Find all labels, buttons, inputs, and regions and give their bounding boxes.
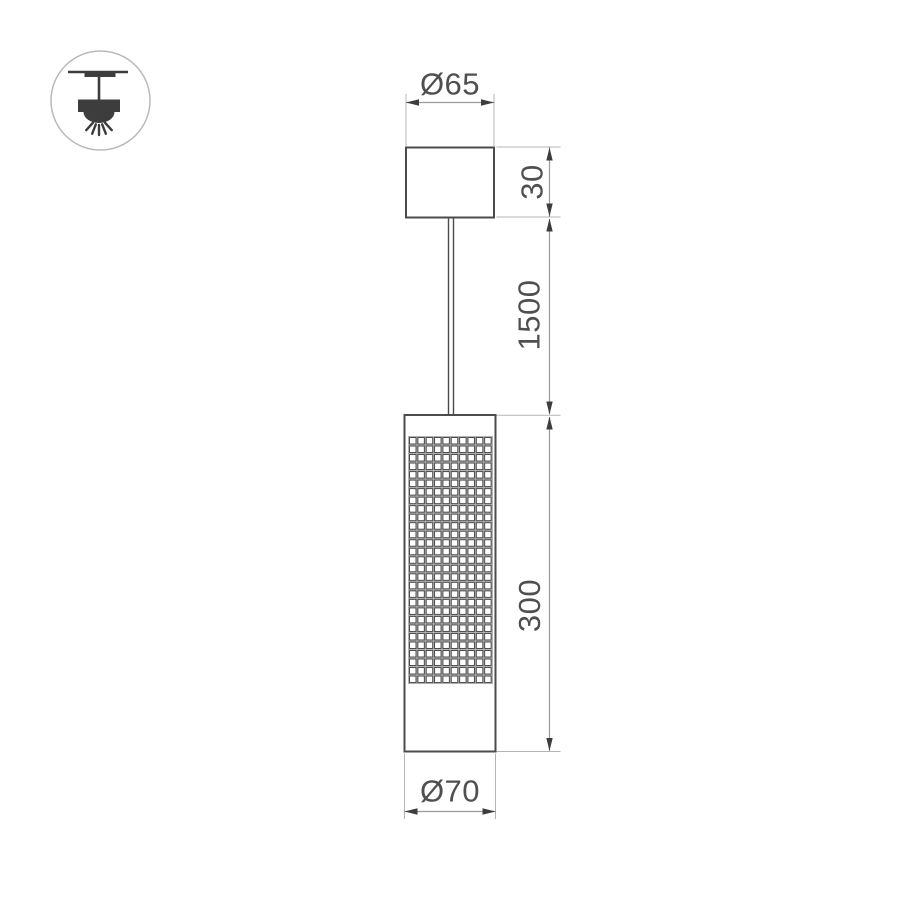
perforation-cell <box>451 506 458 513</box>
perforation-cell <box>443 557 450 564</box>
canopy-outline <box>406 148 494 218</box>
perforation-cell <box>418 668 425 675</box>
perforation-cell <box>468 455 475 462</box>
perforation-cell <box>468 591 475 598</box>
perforation-cell <box>460 497 467 504</box>
perforation-cell <box>426 616 433 623</box>
perforation-cell <box>410 548 417 555</box>
perforation-cell <box>418 616 425 623</box>
perforation-cell <box>426 506 433 513</box>
perforation-cell <box>426 438 433 445</box>
perforation-cell <box>485 582 492 589</box>
perforation-cell <box>460 523 467 530</box>
perforation-cell <box>476 676 483 683</box>
perforation-cell <box>435 531 442 538</box>
perforation-cell <box>485 574 492 581</box>
perforation-cell <box>485 633 492 640</box>
perforation-cell <box>426 625 433 632</box>
perforation-cell <box>460 463 467 470</box>
perforation-cell <box>460 651 467 658</box>
perforation-cell <box>451 548 458 555</box>
perforation-cell <box>435 625 442 632</box>
perforation-cell <box>476 540 483 547</box>
perforation-cell <box>468 472 475 479</box>
perforation-cell <box>451 523 458 530</box>
arrow-up <box>546 417 552 430</box>
dim-label-canopy-height: 30 <box>515 164 550 199</box>
perforation-cell <box>435 506 442 513</box>
perforation-cell <box>468 463 475 470</box>
perforation-cell <box>418 574 425 581</box>
perforation-cell <box>451 633 458 640</box>
perforation-cell <box>418 514 425 521</box>
perforation-cell <box>451 480 458 487</box>
perforation-cell <box>485 497 492 504</box>
perforation-cell <box>460 591 467 598</box>
perforation-cell <box>418 438 425 445</box>
perforation-cell <box>435 616 442 623</box>
perforation-cell <box>451 625 458 632</box>
drawing-canvas: Ø65 30 1500 300 <box>0 0 900 900</box>
perforation-cell <box>468 582 475 589</box>
perforation-cell <box>476 574 483 581</box>
perforation-cell <box>468 625 475 632</box>
perforation-cell <box>410 463 417 470</box>
perforation-cell <box>451 497 458 504</box>
perforation-cell <box>443 514 450 521</box>
perforation-cell <box>443 480 450 487</box>
perforation-cell <box>418 506 425 513</box>
dimension-drawing-svg: Ø65 30 1500 300 <box>0 0 900 900</box>
perforation-cell <box>426 659 433 666</box>
perforation-cell <box>476 455 483 462</box>
perforation-cell <box>468 599 475 606</box>
dim-body-diameter: Ø70 <box>405 754 496 820</box>
perforation-cell <box>418 659 425 666</box>
perforation-cell <box>476 463 483 470</box>
perforation-cell <box>410 557 417 564</box>
perforation-cell <box>476 591 483 598</box>
perforation-cell <box>435 497 442 504</box>
perforation-cell <box>435 651 442 658</box>
perforation-cell <box>410 446 417 453</box>
perforation-cell <box>443 616 450 623</box>
perforation-cell <box>460 438 467 445</box>
perforation-cell <box>476 514 483 521</box>
perforation-cell <box>410 438 417 445</box>
perforation-cell <box>443 651 450 658</box>
perforation-cell <box>426 497 433 504</box>
perforation-cell <box>485 540 492 547</box>
perforation-cell <box>468 642 475 649</box>
perforation-cell <box>418 540 425 547</box>
perforation-cell <box>460 506 467 513</box>
perforation-cell <box>410 514 417 521</box>
perforation-cell <box>418 676 425 683</box>
perforation-cell <box>476 659 483 666</box>
perforation-cell <box>410 540 417 547</box>
perforation-cell <box>468 531 475 538</box>
perforation-cell <box>468 438 475 445</box>
dim-canopy-diameter: Ø65 <box>406 67 494 147</box>
arrow-left <box>406 99 419 105</box>
perforation-cell <box>418 565 425 572</box>
perforation-cell <box>426 574 433 581</box>
perforation-cell <box>485 668 492 675</box>
perforation-cell <box>418 497 425 504</box>
perforation-cell <box>476 651 483 658</box>
perforation-cell <box>410 608 417 615</box>
perforation-cell <box>460 608 467 615</box>
perforation-cell <box>460 565 467 572</box>
perforation-cell <box>476 633 483 640</box>
perforation-cell <box>485 608 492 615</box>
perforation-cell <box>468 489 475 496</box>
perforation-cell <box>418 557 425 564</box>
perforation-cell <box>485 625 492 632</box>
perforation-cell <box>418 651 425 658</box>
perforation-cell <box>476 497 483 504</box>
perforation-cell <box>460 668 467 675</box>
perforation-cell <box>426 455 433 462</box>
perforation-cell <box>460 455 467 462</box>
perforation-cell <box>410 480 417 487</box>
arrow-right <box>483 808 496 814</box>
perforation-cell <box>443 548 450 555</box>
icon-lamp-body <box>78 100 120 113</box>
perforation-cell <box>410 599 417 606</box>
perforation-cell <box>418 531 425 538</box>
perforation-cell <box>460 616 467 623</box>
perforation-cell <box>426 608 433 615</box>
arrow-down <box>546 402 552 415</box>
perforation-cell <box>410 668 417 675</box>
perforation-cell <box>443 531 450 538</box>
perforation-cell <box>418 608 425 615</box>
perforation-cell <box>435 574 442 581</box>
perforation-cell <box>451 463 458 470</box>
perforation-cell <box>410 582 417 589</box>
perforation-cell <box>443 608 450 615</box>
perforation-cell <box>468 651 475 658</box>
perforation-cell <box>460 540 467 547</box>
perforation-cell <box>443 659 450 666</box>
perforation-cell <box>468 633 475 640</box>
perforation-cell <box>435 472 442 479</box>
perforation-cell <box>485 676 492 683</box>
perforation-cell <box>468 480 475 487</box>
perforation-cell <box>451 455 458 462</box>
perforation-cell <box>460 633 467 640</box>
perforation-cell <box>485 565 492 572</box>
perforation-cell <box>485 659 492 666</box>
perforation-cell <box>435 514 442 521</box>
perforation-cell <box>476 506 483 513</box>
perforation-cell <box>435 668 442 675</box>
perforation-cell <box>435 599 442 606</box>
perforation-cell <box>485 446 492 453</box>
perforation-cell <box>451 659 458 666</box>
perforation-cell <box>418 455 425 462</box>
perforation-cell <box>426 548 433 555</box>
perforation-cell <box>435 446 442 453</box>
perforation-cell <box>418 625 425 632</box>
perforation-cell <box>476 472 483 479</box>
perforation-cell <box>451 608 458 615</box>
arrow-right <box>481 99 494 105</box>
perforation-cell <box>435 642 442 649</box>
perforation-cell <box>435 540 442 547</box>
dim-label-canopy-diameter: Ø65 <box>420 67 480 102</box>
dim-label-suspension-length: 1500 <box>512 280 547 351</box>
perforation-cell <box>443 633 450 640</box>
perforation-cell <box>426 472 433 479</box>
perforation-cell <box>443 591 450 598</box>
perforation-cell <box>451 514 458 521</box>
perforation-cell <box>443 438 450 445</box>
perforation-cell <box>435 548 442 555</box>
perforation-cell <box>443 676 450 683</box>
perforation-cell <box>410 591 417 598</box>
perforation-cell <box>460 472 467 479</box>
perforation-cell <box>443 599 450 606</box>
perforation-cell <box>443 455 450 462</box>
perforation-cell <box>468 497 475 504</box>
perforation-cell <box>418 480 425 487</box>
arrow-up <box>546 148 552 161</box>
perforation-cell <box>468 574 475 581</box>
perforation-cell <box>485 531 492 538</box>
perforation-cell <box>468 540 475 547</box>
perforation-cell <box>443 472 450 479</box>
perforation-cell <box>418 472 425 479</box>
perforation-cell <box>418 463 425 470</box>
perforation-cell <box>468 514 475 521</box>
perforation-cell <box>418 446 425 453</box>
perforation-cell <box>435 633 442 640</box>
perforation-cell <box>460 548 467 555</box>
perforation-cell <box>451 676 458 683</box>
perforation-cell <box>443 540 450 547</box>
perforation-cell <box>485 642 492 649</box>
perforation-cell <box>435 455 442 462</box>
perforation-cell <box>485 489 492 496</box>
perforation-cell <box>410 616 417 623</box>
perforation-cell <box>426 480 433 487</box>
perforation-cell <box>485 557 492 564</box>
perforation-cell <box>435 582 442 589</box>
perforation-cell <box>468 668 475 675</box>
perforation-cell <box>426 599 433 606</box>
perforation-cell <box>451 668 458 675</box>
dim-canopy-height: 30 <box>497 147 561 217</box>
perforation-cell <box>410 633 417 640</box>
perforation-cell <box>443 463 450 470</box>
perforation-cell <box>468 557 475 564</box>
perforation-cell <box>451 591 458 598</box>
perforation-cell <box>460 446 467 453</box>
perforation-cell <box>468 676 475 683</box>
perforation-cell <box>426 565 433 572</box>
perforation-cell <box>485 472 492 479</box>
perforation-cell <box>476 668 483 675</box>
perforation-cell <box>451 446 458 453</box>
perforation-cell <box>485 548 492 555</box>
arrow-up <box>546 219 552 232</box>
perforation-cell <box>460 582 467 589</box>
perforation-cell <box>476 438 483 445</box>
perforation-cell <box>451 472 458 479</box>
perforation-cell <box>451 616 458 623</box>
perforation-cell <box>476 557 483 564</box>
perforation-cell <box>410 523 417 530</box>
perforation-cell <box>451 565 458 572</box>
perforation-cell <box>435 523 442 530</box>
perforation-cell <box>418 489 425 496</box>
perforation-cell <box>410 565 417 572</box>
perforation-cell <box>443 523 450 530</box>
perforation-cell <box>460 659 467 666</box>
perforation-cell <box>418 642 425 649</box>
perforation-cell <box>426 463 433 470</box>
perforation-cell <box>476 608 483 615</box>
perforation-cell <box>460 514 467 521</box>
perforation-cell <box>410 651 417 658</box>
perforation-cell <box>468 548 475 555</box>
perforation-cell <box>460 574 467 581</box>
perforation-cell <box>451 651 458 658</box>
perforation-cell <box>435 463 442 470</box>
perforation-cell <box>460 489 467 496</box>
perforation-cell <box>418 548 425 555</box>
perforation-cell <box>476 531 483 538</box>
perforation-cell <box>410 642 417 649</box>
perforation-cell <box>418 582 425 589</box>
perforation-cell <box>476 616 483 623</box>
perforation-cell <box>443 625 450 632</box>
perforation-cell <box>410 472 417 479</box>
perforation-cell <box>435 438 442 445</box>
perforation-cell <box>418 591 425 598</box>
perforation-cell <box>485 651 492 658</box>
perforation-cell <box>426 523 433 530</box>
perforation-cell <box>476 625 483 632</box>
dim-label-body-diameter: Ø70 <box>420 774 480 809</box>
perforation-cell <box>443 506 450 513</box>
perforation-cell <box>418 599 425 606</box>
arrow-left <box>405 808 418 814</box>
perforation-cell <box>410 497 417 504</box>
perforation-cell <box>443 582 450 589</box>
perforation-cell <box>435 565 442 572</box>
dim-body-height: 300 <box>497 415 561 751</box>
perforation-cell <box>460 531 467 538</box>
perforation-cell <box>468 565 475 572</box>
icon-mount-plate <box>85 73 116 78</box>
perforation-cell <box>426 676 433 683</box>
perforation-cell <box>426 446 433 453</box>
perforation-cell <box>410 455 417 462</box>
perforation-cell <box>451 438 458 445</box>
perforation-cell <box>435 557 442 564</box>
perforation-cell <box>468 659 475 666</box>
perforation-cell <box>435 489 442 496</box>
arrow-down <box>546 738 552 751</box>
perforation-cell <box>426 557 433 564</box>
perforation-cell <box>468 523 475 530</box>
ceiling-mount-icon <box>51 51 150 150</box>
perforation-cell <box>410 625 417 632</box>
perforation-cell <box>410 506 417 513</box>
perforation-cell <box>435 480 442 487</box>
perforation-cell <box>451 540 458 547</box>
perforation-cell <box>468 616 475 623</box>
perforation-cell <box>460 676 467 683</box>
perforation-cell <box>426 540 433 547</box>
perforation-cell <box>460 599 467 606</box>
perforation-cell <box>410 489 417 496</box>
perforation-cell <box>460 642 467 649</box>
perforation-cell <box>476 642 483 649</box>
perforation-cell <box>435 591 442 598</box>
perforation-cell <box>476 599 483 606</box>
perforation-cell <box>476 548 483 555</box>
perforation-cell <box>418 523 425 530</box>
perforation-cell <box>410 676 417 683</box>
perforation-cell <box>443 446 450 453</box>
perforation-cell <box>435 676 442 683</box>
perforation-cell <box>426 668 433 675</box>
perforation-cell <box>460 625 467 632</box>
perforation-cell <box>435 608 442 615</box>
perforation-cell <box>443 565 450 572</box>
perforation-cell <box>451 599 458 606</box>
perforation-cell <box>485 455 492 462</box>
perforation-cell <box>476 523 483 530</box>
perforation-cell <box>476 489 483 496</box>
arrow-down <box>546 204 552 217</box>
perforation-cell <box>451 489 458 496</box>
perforation-cell <box>460 557 467 564</box>
perforation-cell <box>451 642 458 649</box>
perforation-cell <box>426 531 433 538</box>
perforation-cell <box>460 480 467 487</box>
perforation-cell <box>410 659 417 666</box>
perforation-cell <box>485 463 492 470</box>
perforation-cell <box>443 668 450 675</box>
perforation-cell <box>426 633 433 640</box>
perforation-cell <box>485 616 492 623</box>
suspension-cable <box>449 218 454 416</box>
perforation-cell <box>418 633 425 640</box>
perforation-cell <box>426 642 433 649</box>
perforation-cell <box>485 438 492 445</box>
perforation-cell <box>485 514 492 521</box>
perforation-cell <box>451 582 458 589</box>
perforation-cell <box>485 506 492 513</box>
perforation-cell <box>443 497 450 504</box>
perforation-cell <box>476 582 483 589</box>
perforation-cell <box>426 489 433 496</box>
perforation-cell <box>485 523 492 530</box>
perforation-cell <box>426 514 433 521</box>
perforation-cell <box>468 608 475 615</box>
perforation-cell <box>468 446 475 453</box>
dim-label-body-height: 300 <box>512 579 547 632</box>
perforation-cell <box>476 446 483 453</box>
dim-suspension-length: 1500 <box>512 219 553 415</box>
perforation-cell <box>468 506 475 513</box>
